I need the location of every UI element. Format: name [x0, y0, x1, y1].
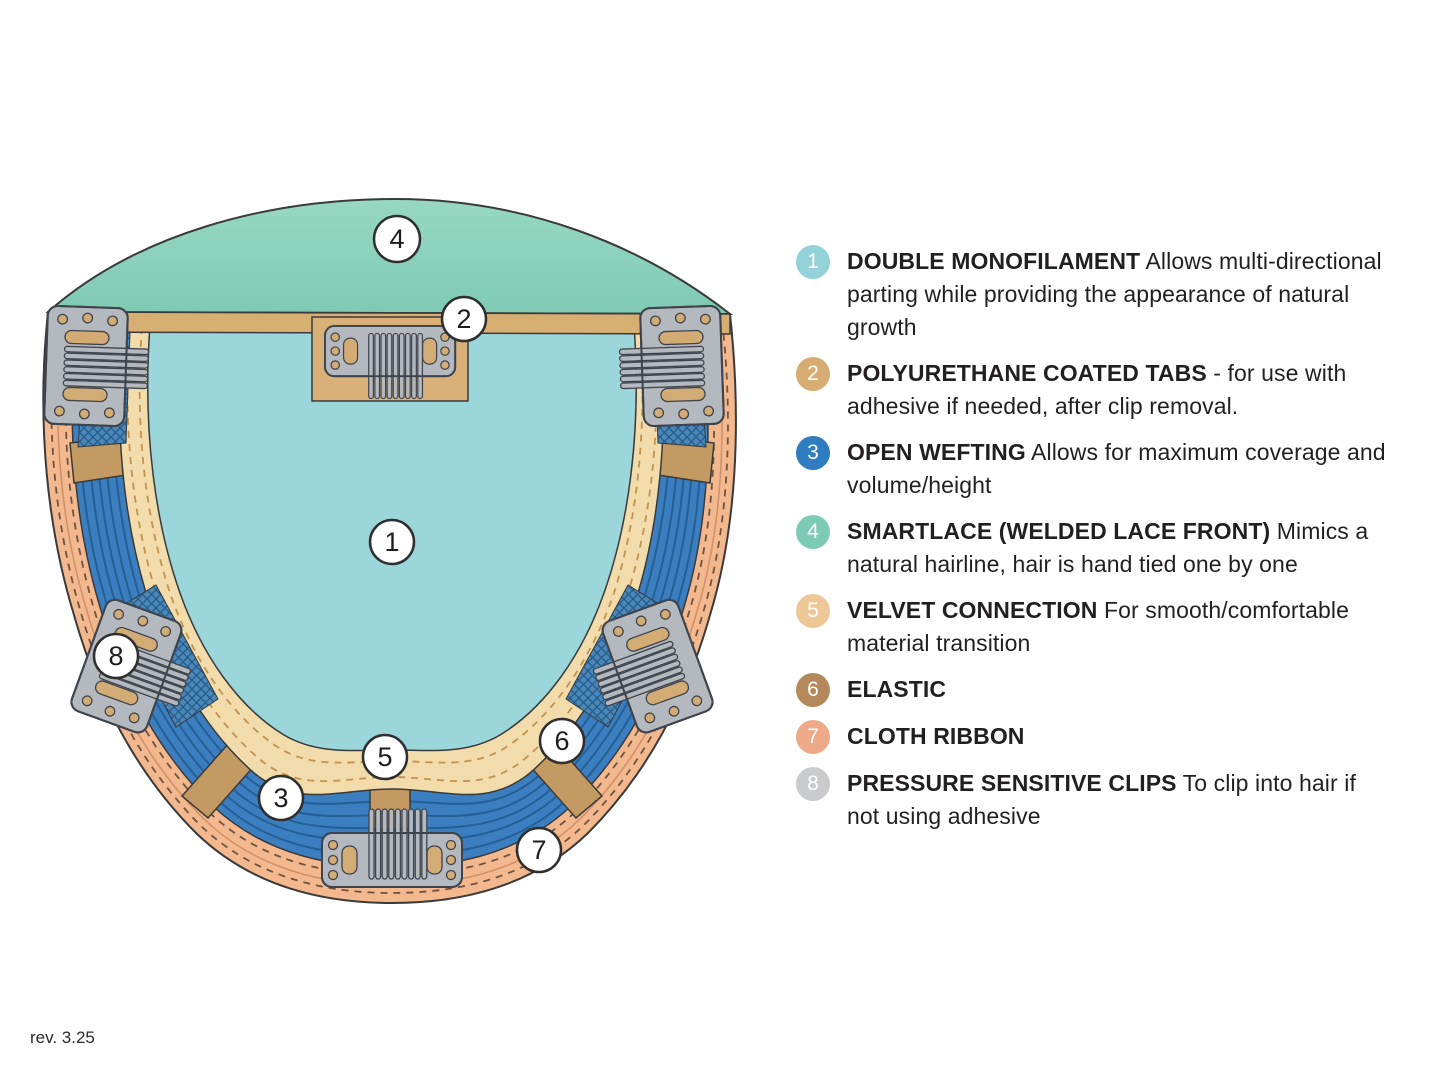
- legend-item-4: 4 SMARTLACE (WELDED LACE FRONT) Mimics a…: [796, 515, 1408, 581]
- callout-2-number: 2: [456, 304, 471, 334]
- legend-item-2: 2 POLYURETHANE COATED TABS - for use wit…: [796, 357, 1408, 423]
- legend-text-1: DOUBLE MONOFILAMENT Allows multi-directi…: [847, 245, 1392, 344]
- legend-title-2: POLYURETHANE COATED TABS: [847, 360, 1207, 386]
- callout-6: 6: [540, 719, 584, 763]
- callout-7: 7: [517, 828, 561, 872]
- callout-2: 2: [442, 297, 486, 341]
- callout-1: 1: [370, 520, 414, 564]
- callout-8: 8: [94, 634, 138, 678]
- legend-badge-5: 5: [796, 594, 830, 628]
- legend-title-5: VELVET CONNECTION: [847, 597, 1097, 623]
- legend-title-6: ELASTIC: [847, 676, 946, 702]
- legend: 1 DOUBLE MONOFILAMENT Allows multi-direc…: [796, 245, 1408, 833]
- callout-7-number: 7: [531, 835, 546, 865]
- legend-item-6: 6 ELASTIC: [796, 673, 1408, 707]
- legend-title-4: SMARTLACE (WELDED LACE FRONT): [847, 518, 1270, 544]
- callout-5: 5: [363, 735, 407, 779]
- legend-title-1: DOUBLE MONOFILAMENT: [847, 248, 1140, 274]
- callout-1-number: 1: [384, 527, 399, 557]
- legend-badge-2: 2: [796, 357, 830, 391]
- legend-text-8: PRESSURE SENSITIVE CLIPS To clip into ha…: [847, 767, 1392, 833]
- callout-6-number: 6: [554, 726, 569, 756]
- legend-text-5: VELVET CONNECTION For smooth/comfortable…: [847, 594, 1392, 660]
- revision-label: rev. 3.25: [30, 1028, 95, 1048]
- legend-badge-8: 8: [796, 767, 830, 801]
- callout-4-number: 4: [389, 224, 404, 254]
- legend-item-3: 3 OPEN WEFTING Allows for maximum covera…: [796, 436, 1408, 502]
- wig-cap-construction-diagram: 1 2 3 4 5 6 7 8: [30, 185, 740, 915]
- legend-item-1: 1 DOUBLE MONOFILAMENT Allows multi-direc…: [796, 245, 1408, 344]
- callout-8-number: 8: [108, 641, 123, 671]
- legend-text-6: ELASTIC: [847, 673, 1392, 706]
- legend-badge-7: 7: [796, 720, 830, 754]
- legend-badge-4: 4: [796, 515, 830, 549]
- legend-title-7: CLOTH RIBBON: [847, 723, 1025, 749]
- callout-4: 4: [374, 216, 420, 262]
- legend-badge-1: 1: [796, 245, 830, 279]
- legend-text-7: CLOTH RIBBON: [847, 720, 1392, 753]
- callout-5-number: 5: [377, 742, 392, 772]
- legend-item-5: 5 VELVET CONNECTION For smooth/comfortab…: [796, 594, 1408, 660]
- legend-text-2: POLYURETHANE COATED TABS - for use with …: [847, 357, 1392, 423]
- callout-3-number: 3: [273, 783, 288, 813]
- legend-badge-3: 3: [796, 436, 830, 470]
- legend-text-3: OPEN WEFTING Allows for maximum coverage…: [847, 436, 1392, 502]
- legend-title-8: PRESSURE SENSITIVE CLIPS: [847, 770, 1177, 796]
- callout-3: 3: [259, 776, 303, 820]
- legend-title-3: OPEN WEFTING: [847, 439, 1026, 465]
- legend-text-4: SMARTLACE (WELDED LACE FRONT) Mimics a n…: [847, 515, 1392, 581]
- legend-badge-6: 6: [796, 673, 830, 707]
- legend-item-8: 8 PRESSURE SENSITIVE CLIPS To clip into …: [796, 767, 1408, 833]
- legend-item-7: 7 CLOTH RIBBON: [796, 720, 1408, 754]
- page: 1 2 3 4 5 6 7 8 1 DOUBLE MONOFILAMENT Al…: [0, 0, 1445, 1085]
